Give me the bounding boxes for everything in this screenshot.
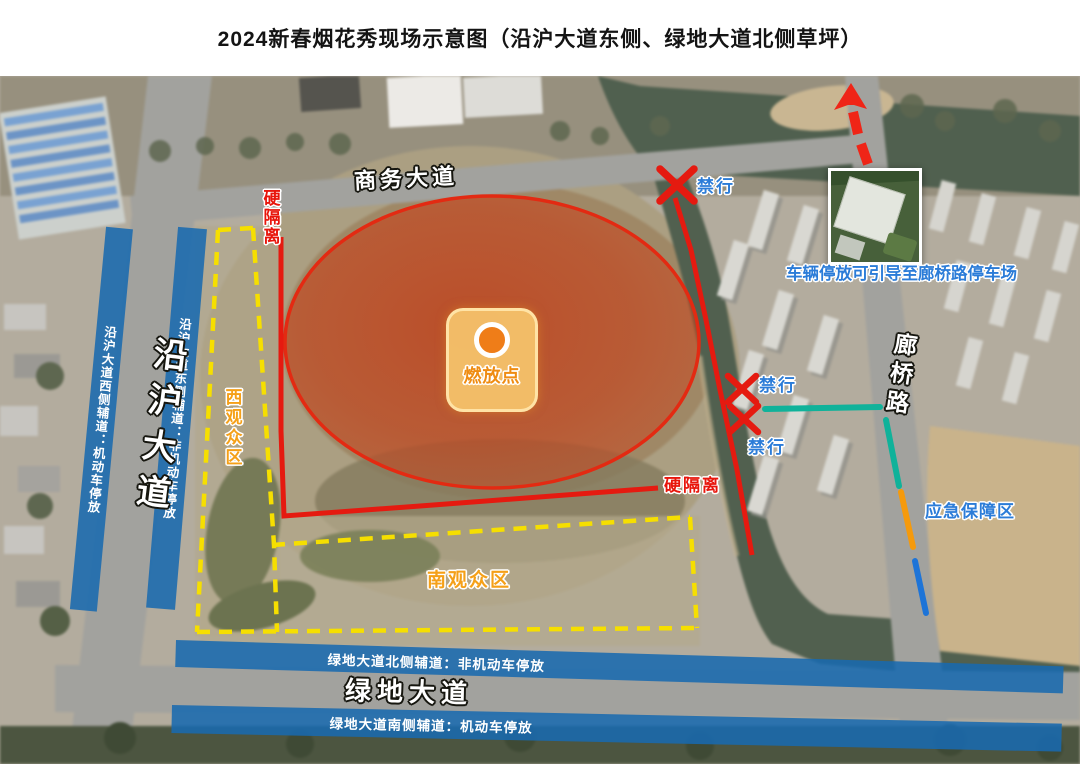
satellite-map: 沿沪大道西侧辅道：机动车停放 沿沪大道东侧辅道：非机动车停放 绿地大道北侧辅道：… [0, 76, 1080, 764]
page-header: 2024新春烟花秀现场示意图（沿沪大道东侧、绿地大道北侧草坪） [0, 0, 1080, 76]
parking-guidance-note: 车辆停放可引导至廊桥路停车场 [786, 265, 1017, 284]
site-map-page: 2024新春烟花秀现场示意图（沿沪大道东侧、绿地大道北侧草坪） [0, 0, 1080, 764]
parking-lot-inset-image [828, 168, 922, 265]
inset-green-patch [882, 232, 917, 262]
no-entry-label-middle: 禁行 [759, 376, 797, 396]
inset-trees [828, 168, 922, 186]
parking-direction-arrow [834, 83, 868, 164]
road-label-lvdi: 绿地大道 [345, 676, 474, 709]
barrier-label-hard-isolation-left: 硬隔离 [260, 189, 280, 246]
inset-small-building [835, 234, 866, 260]
emergency-support-lines [765, 407, 926, 613]
no-entry-label-bottom: 禁行 [748, 438, 786, 458]
zone-label-west-audience: 西观众区 [222, 388, 242, 468]
ignition-point-label: 燃放点 [449, 362, 535, 388]
zone-label-emergency-support: 应急保障区 [925, 502, 1015, 522]
barrier-label-hard-isolation-south: 硬隔离 [664, 476, 721, 496]
zone-label-south-audience: 南观众区 [427, 570, 511, 592]
page-title: 2024新春烟花秀现场示意图（沿沪大道东侧、绿地大道北侧草坪） [218, 23, 863, 53]
no-entry-label-top: 禁行 [697, 177, 735, 197]
ignition-point-marker: 燃放点 [446, 308, 538, 412]
ignition-point-icon [474, 322, 510, 358]
